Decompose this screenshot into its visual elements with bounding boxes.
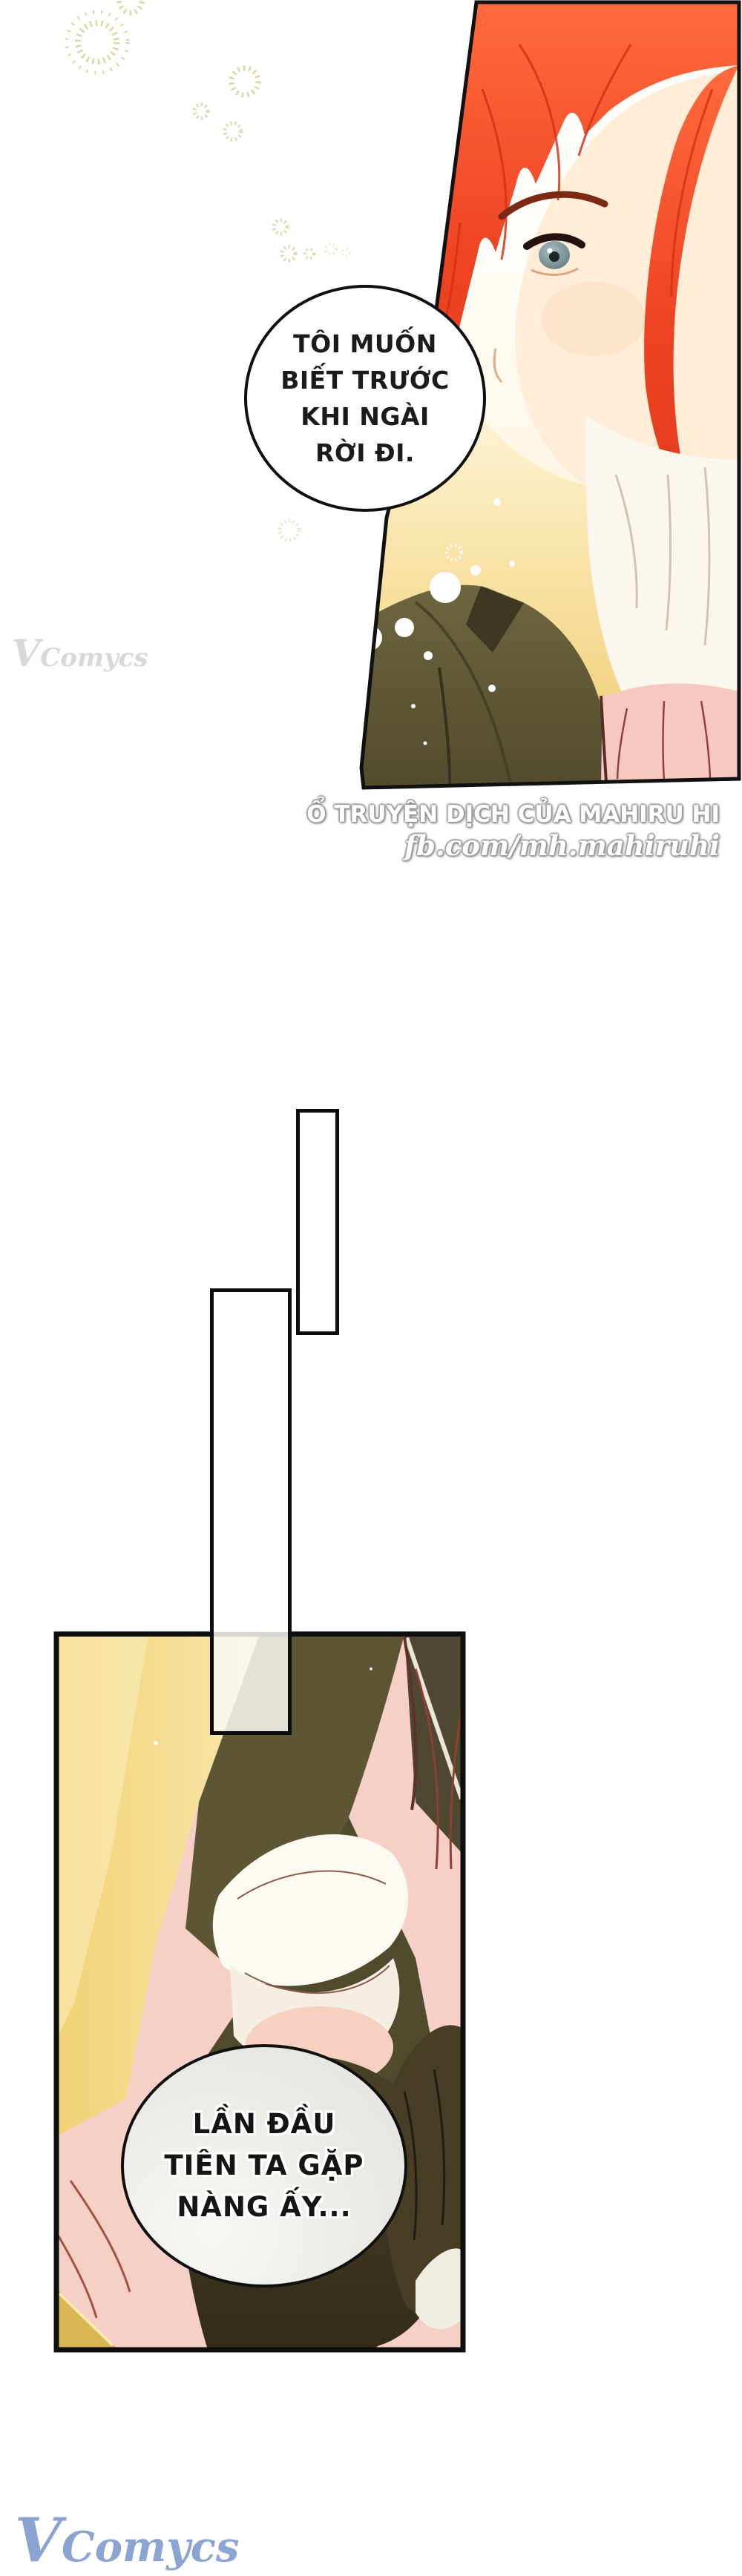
transition-rect-small	[296, 1109, 339, 1335]
transition-rect-tall-upper	[214, 1292, 288, 1632]
transition-rect-tall	[210, 1288, 292, 1735]
speech-bubble-top: TÔI MUỐN BIẾT TRƯỚC KHI NGÀI RỜI ĐI.	[244, 285, 486, 512]
speech-line: BIẾT TRƯỚC	[280, 362, 450, 398]
speech-line: KHI NGÀI	[301, 398, 429, 435]
speech-line: NÀNG ẤY...	[177, 2187, 351, 2228]
cheek-shading	[542, 282, 646, 356]
eye-highlight	[548, 248, 553, 254]
speech-line: LẦN ĐẦU	[193, 2104, 336, 2145]
panel-3-artwork	[0, 1624, 742, 2362]
translator-credits: Ổ TRUYỆN DỊCH CỦA MAHIRU HI fb.com/mh.ma…	[306, 801, 720, 862]
transition-rect-tall-overlay	[214, 1632, 288, 1731]
translator-group-name: Ổ TRUYỆN DỊCH CỦA MAHIRU HI	[306, 801, 720, 828]
speech-line: TÔI MUỐN	[293, 326, 437, 362]
speech-line: RỜI ĐI.	[315, 435, 415, 471]
watermark-top: VComycs	[12, 632, 148, 675]
watermark-bottom: VComycs	[15, 2506, 239, 2576]
speech-line: TIÊN TA GẶP	[164, 2145, 364, 2187]
translator-url: fb.com/mh.mahiruhi	[306, 829, 720, 862]
comic-page: TÔI MUỐN BIẾT TRƯỚC KHI NGÀI RỜI ĐI. LẦN…	[0, 0, 742, 2576]
thought-bubble-bottom: LẦN ĐẦU TIÊN TA GẶP NÀNG ẤY...	[121, 2044, 407, 2287]
